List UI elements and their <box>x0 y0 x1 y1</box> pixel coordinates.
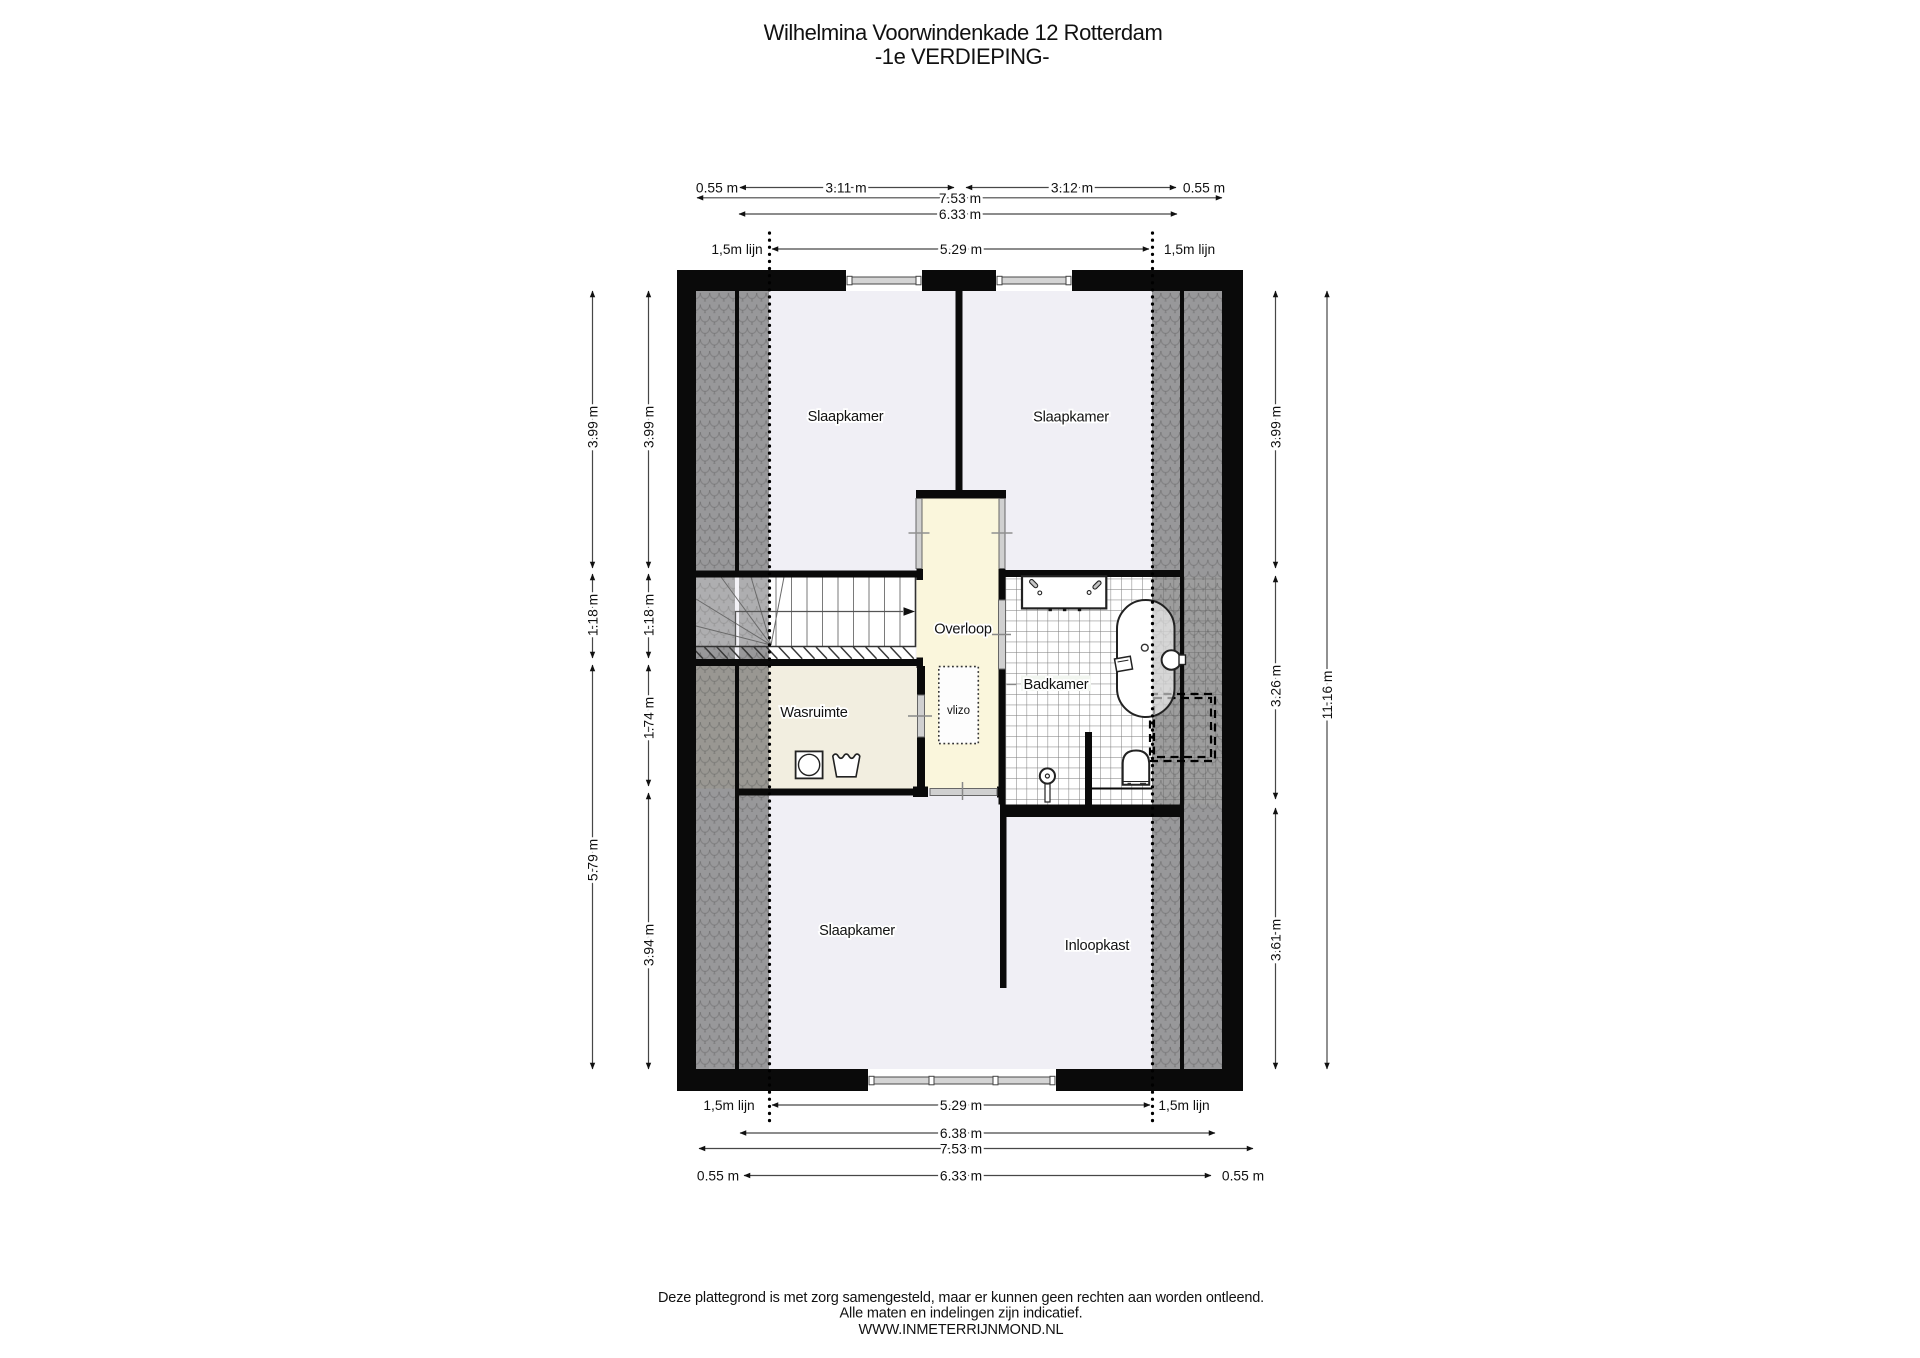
svg-text:3.26 m: 3.26 m <box>1269 665 1284 707</box>
svg-text:Overloop: Overloop <box>934 622 992 638</box>
svg-text:7.53 m: 7.53 m <box>939 191 981 206</box>
svg-text:1,5m lijn: 1,5m lijn <box>1158 1098 1209 1113</box>
svg-text:3.99 m: 3.99 m <box>586 406 601 448</box>
svg-text:5.29 m: 5.29 m <box>940 242 982 257</box>
svg-text:WWW.INMETERRIJNMOND.NL: WWW.INMETERRIJNMOND.NL <box>859 1322 1064 1338</box>
svg-text:1.74 m: 1.74 m <box>642 697 657 739</box>
svg-text:vlizo: vlizo <box>947 705 970 717</box>
svg-text:5.29 m: 5.29 m <box>940 1098 982 1113</box>
svg-text:3.94 m: 3.94 m <box>642 924 657 966</box>
svg-text:0.55 m: 0.55 m <box>1222 1169 1264 1184</box>
svg-text:Badkamer: Badkamer <box>1024 677 1089 693</box>
svg-text:-1e VERDIEPING-: -1e VERDIEPING- <box>875 44 1049 69</box>
svg-text:6.33 m: 6.33 m <box>940 1169 982 1184</box>
svg-text:3.61 m: 3.61 m <box>1269 919 1284 961</box>
svg-text:7.53 m: 7.53 m <box>940 1142 982 1157</box>
svg-text:Alle maten en indelingen zijn: Alle maten en indelingen zijn indicatief… <box>840 1306 1083 1322</box>
svg-text:0.55 m: 0.55 m <box>1183 181 1225 196</box>
svg-text:0.55 m: 0.55 m <box>697 1169 739 1184</box>
svg-text:3.99 m: 3.99 m <box>642 406 657 448</box>
svg-text:Wasruimte: Wasruimte <box>780 705 847 721</box>
svg-text:1.18 m: 1.18 m <box>586 594 601 636</box>
svg-text:Slaapkamer: Slaapkamer <box>808 409 884 425</box>
svg-text:Deze plattegrond is met zorg s: Deze plattegrond is met zorg samengestel… <box>658 1290 1264 1306</box>
svg-text:1,5m lijn: 1,5m lijn <box>711 242 762 257</box>
svg-text:Wilhelmina Voorwindenkade 12 R: Wilhelmina Voorwindenkade 12 Rotterdam <box>764 20 1163 45</box>
svg-text:3.99 m: 3.99 m <box>1269 406 1284 448</box>
svg-text:Slaapkamer: Slaapkamer <box>819 923 895 939</box>
svg-text:5.79 m: 5.79 m <box>586 839 601 881</box>
svg-text:6.33 m: 6.33 m <box>939 207 981 222</box>
svg-text:Slaapkamer: Slaapkamer <box>1033 410 1109 426</box>
svg-text:3.11 m: 3.11 m <box>825 181 866 196</box>
svg-text:1,5m lijn: 1,5m lijn <box>703 1098 754 1113</box>
svg-text:1,5m lijn: 1,5m lijn <box>1164 242 1215 257</box>
svg-text:3.12 m: 3.12 m <box>1051 181 1093 196</box>
svg-text:11.16 m: 11.16 m <box>1320 671 1335 720</box>
svg-text:6.38 m: 6.38 m <box>940 1126 982 1141</box>
svg-text:0.55 m: 0.55 m <box>696 181 738 196</box>
svg-text:1.18 m: 1.18 m <box>642 594 657 636</box>
svg-text:Inloopkast: Inloopkast <box>1065 938 1130 954</box>
